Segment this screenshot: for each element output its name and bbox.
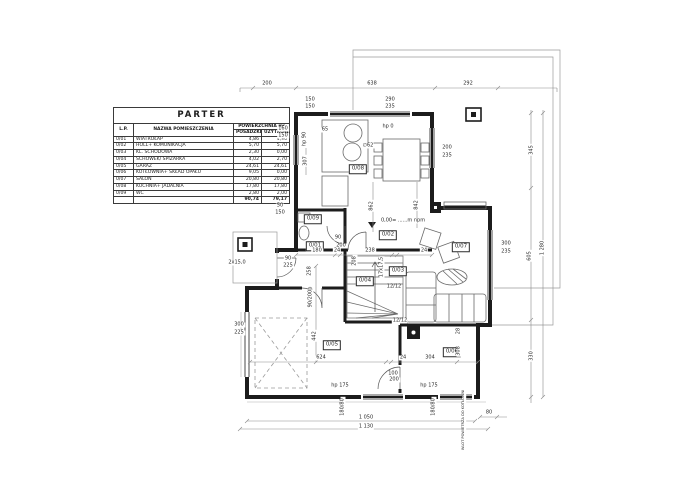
room-label: 0/05 (323, 340, 341, 350)
coffee-table (437, 269, 467, 285)
solid-symbols (238, 108, 481, 339)
dim-label: 238 (364, 249, 376, 254)
room-label: 0/02 (379, 230, 397, 240)
dim-label: 24 (420, 249, 428, 254)
dim-label: 150 (274, 211, 286, 216)
dim-label: 28 (457, 327, 462, 335)
dim-label: ∅62 (362, 144, 375, 149)
dim-label: 208 (353, 255, 358, 267)
dim-label: 50 (276, 204, 284, 209)
dim-label: 1 130 (358, 425, 374, 430)
dim-label: 90 (334, 236, 342, 241)
dim-label: 65 (321, 128, 329, 133)
dim-label: 80 (485, 411, 493, 416)
dim-label: 330 (530, 350, 535, 362)
dim-label: 150 (304, 105, 316, 110)
dim-label: 290 (384, 98, 396, 103)
room-label: 0/08 (349, 164, 367, 174)
dim-label: 150 (277, 134, 289, 139)
dim-label: 842 (415, 199, 420, 211)
dim-label: WLOT POWIETRZA DO KOTŁOWNI (462, 389, 466, 451)
dim-label: 24 (399, 356, 407, 361)
dim-label: hp 175 (419, 384, 438, 389)
dim-label: 624 (315, 356, 327, 361)
dim-label: 200 (261, 82, 273, 87)
entry-porch (233, 232, 277, 283)
wall-openings (243, 110, 494, 401)
dim-label: 24 (333, 249, 341, 254)
dim-label: 304 (424, 356, 436, 361)
dim-label: 345 (530, 144, 535, 156)
dim-label: 200 (441, 146, 453, 151)
dim-label: 638 (366, 82, 378, 87)
dim-label: 235 (441, 154, 453, 159)
dim-label: 292 (462, 82, 474, 87)
kitchen-sink (344, 124, 362, 142)
floor-plan: 0/080/090/010/020/040/030/070/050/062006… (0, 0, 678, 480)
room-label: 0/07 (452, 242, 470, 252)
dim-label: 180 (311, 249, 323, 254)
dim-label: 1 050 (358, 416, 374, 421)
room-label: 0/03 (389, 266, 407, 276)
dim-label: 180/80 (341, 397, 346, 417)
dim-label: 307 (304, 155, 309, 167)
room-label: 0/09 (304, 214, 322, 224)
dim-label: 150 (304, 98, 316, 103)
parking-space (255, 318, 307, 388)
dim-label: hp 175 (330, 384, 349, 389)
dim-label: 308 (457, 345, 462, 357)
dim-label: 180/80 (432, 397, 437, 417)
dim-label: 160 (277, 127, 289, 132)
room-label: 0/04 (356, 276, 374, 286)
dim-label: 12/12 (386, 285, 402, 290)
dim-label: 2x15,0 (227, 261, 246, 266)
dining-table (383, 139, 420, 181)
dim-label: 225 (233, 331, 245, 336)
dim-label: 442 (313, 330, 318, 342)
dim-label: 300 (500, 242, 512, 247)
floorplan-sheet: PARTER L.P. NAZWA POMIESZCZENIA POWIERZC… (0, 0, 678, 480)
dim-label: 90 (284, 257, 292, 262)
dim-label: 200 (388, 378, 400, 383)
sofa (406, 272, 436, 322)
armchair (420, 228, 441, 249)
dim-label: hp 0 (381, 125, 394, 130)
dim-label: 300 (233, 323, 245, 328)
dim-label: hp 90 (303, 131, 308, 147)
dim-label: 0,00= ......m npm (380, 219, 426, 224)
level-marker (368, 222, 376, 228)
dim-label: 258 (308, 265, 313, 277)
wc-toilet (299, 226, 309, 240)
dim-label: 235 (384, 105, 396, 110)
dim-label: 1 280 (541, 240, 546, 256)
dim-label: 90/200p (309, 286, 314, 309)
dim-label: 605 (528, 250, 533, 262)
dim-label: 862 (370, 200, 375, 212)
dim-label: 12/12 (392, 319, 408, 324)
dim-label: 225 (282, 264, 294, 269)
dim-label: 235 (500, 250, 512, 255)
dim-label: 17x17,5 (380, 256, 385, 278)
